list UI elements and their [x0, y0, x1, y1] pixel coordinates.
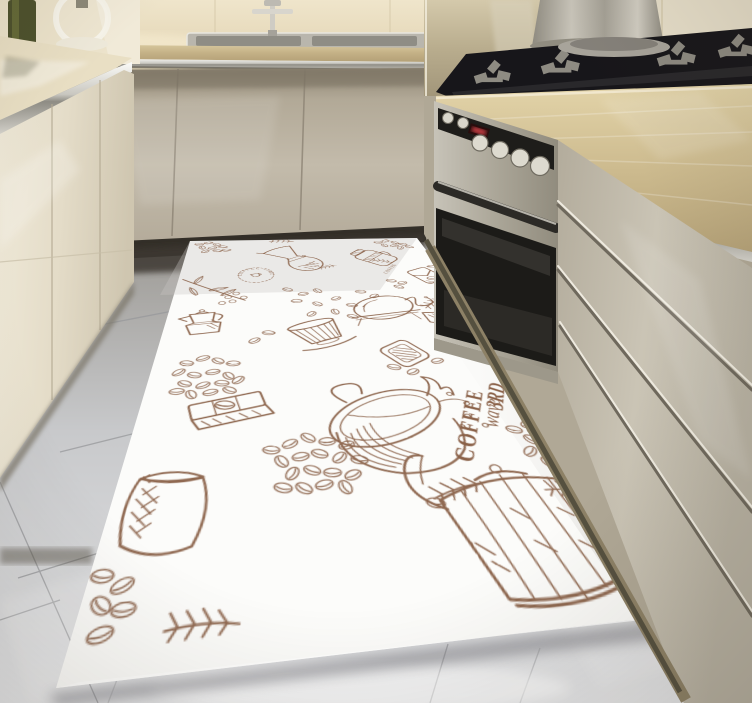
- oven-knob-small-2: [458, 118, 469, 129]
- oven-handle: [438, 186, 556, 228]
- sink-basin-left: [196, 36, 301, 46]
- rug-shadow: [50, 616, 708, 703]
- svg-text:COFFEE TIME: COFFEE TIME: [233, 265, 275, 280]
- rug-art-coffee-time-stamp: COFFEE TIME: [233, 265, 279, 284]
- left-counter-arm: [0, 0, 140, 492]
- built-in-oven: [434, 101, 558, 384]
- kitchen-photo: COFFEE TIME COFFEE: [0, 0, 752, 703]
- range-hood: [530, 0, 666, 57]
- chrome-faucet: [252, 0, 293, 36]
- right-cabinet-run: [424, 0, 752, 703]
- rug-art-lettering: 3RD wave COFFEE: [416, 379, 563, 467]
- island-counter-face: [436, 84, 752, 252]
- upper-left-cabinet: [0, 0, 140, 64]
- drawer-stack: [558, 140, 752, 703]
- svg-text:COFFEE: COFFEE: [382, 264, 398, 275]
- glass-kettle: [56, 0, 108, 51]
- rug-art-chocolate-bar: [188, 390, 274, 430]
- counter-edge-trim: [436, 178, 752, 274]
- sink-and-faucet: [187, 0, 433, 49]
- rug-text-coffee: COFFEE: [449, 387, 489, 466]
- oven-door-glass: [436, 208, 556, 366]
- gas-cooktop: [436, 28, 752, 98]
- wok-burner: [558, 37, 670, 57]
- rug-art-canister: [378, 339, 432, 368]
- rug-stamp-text: COFFEE TIME: [233, 265, 275, 280]
- oven-display: [468, 123, 490, 138]
- rug-art-coffee-beans: [68, 239, 672, 650]
- rug-art-syphon-bulb: [341, 291, 447, 326]
- mirror-cabinet: [424, 0, 560, 96]
- rug-art-chemex: [257, 245, 331, 275]
- rug-art-dripper-cup: [282, 316, 358, 354]
- rug-art-burlap-sack: [108, 471, 213, 556]
- right-toe-kick: [426, 240, 686, 700]
- floor-reflections: [0, 548, 700, 703]
- left-counter-surface: [0, 36, 132, 120]
- rug-art-lying-percolator: [437, 316, 485, 334]
- coffee-rug-print: COFFEE TIME COFFEE: [56, 238, 700, 688]
- rug-art-coffee-branch: [175, 275, 247, 306]
- plant-leaves: [735, 70, 752, 102]
- floor-grout-lines: [0, 310, 660, 703]
- oven-knob-small-1: [443, 113, 454, 124]
- right-marble-wall: [560, 0, 752, 62]
- rug-art-lidded-mug: [347, 246, 402, 267]
- left-cabinet-doors: [0, 70, 134, 478]
- back-cabinet-doors: [55, 68, 430, 244]
- rug-art-droplets: [442, 391, 489, 429]
- oven-knobs-row: [472, 135, 550, 176]
- left-base-shadow: [0, 282, 134, 492]
- back-countertop: [0, 44, 430, 70]
- burner-grates: [474, 34, 752, 84]
- rug-art-swan-neck-pot: [391, 425, 680, 626]
- rug-art-pouch: [406, 267, 447, 284]
- floor-and-rug-layer: [0, 0, 752, 703]
- green-glass-bottle: [2, 0, 42, 62]
- left-counter-trim: [0, 62, 132, 134]
- rug-art-moka-pot: [178, 308, 225, 336]
- rug-art-jar-label: COFFEE: [382, 264, 398, 275]
- rug-text-wave: wave: [480, 397, 507, 430]
- rug-base: [56, 238, 700, 688]
- photo-vignette: [0, 0, 752, 703]
- rug-text-3rd: 3RD: [481, 380, 511, 413]
- oven-control-panel: [438, 108, 554, 170]
- rug-art-herb-sprigs: [160, 238, 671, 649]
- sink-basin-right: [312, 36, 417, 46]
- tile-floor: [0, 210, 752, 703]
- toe-kick-shadow: [56, 222, 662, 614]
- kitchen-cabinetry-layer: [0, 0, 752, 703]
- backsplash-wall: [0, 0, 570, 70]
- rug-art-splashing-cup: [304, 369, 511, 489]
